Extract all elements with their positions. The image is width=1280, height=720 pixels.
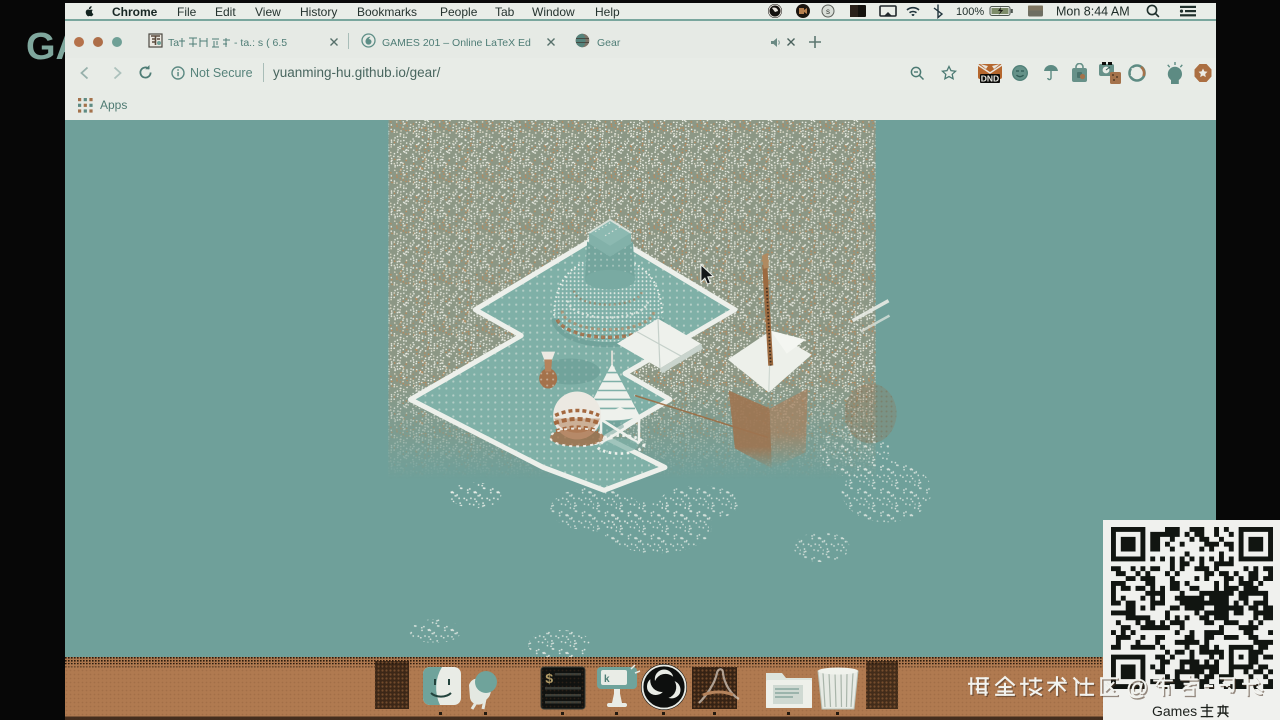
svg-text:k: k xyxy=(604,674,610,685)
svg-text:DND: DND xyxy=(981,74,999,84)
svg-text:@: @ xyxy=(1126,675,1148,700)
svg-text:s: s xyxy=(826,7,830,16)
svg-text:- ta.: s ( 6.5: - ta.: s ( 6.5 xyxy=(234,37,287,49)
svg-text:Games: Games xyxy=(1152,703,1197,719)
svg-text:100%: 100% xyxy=(956,6,984,18)
svg-text:Mon 8:44 AM: Mon 8:44 AM xyxy=(1056,5,1130,19)
svg-text:Ta: Ta xyxy=(168,37,179,49)
